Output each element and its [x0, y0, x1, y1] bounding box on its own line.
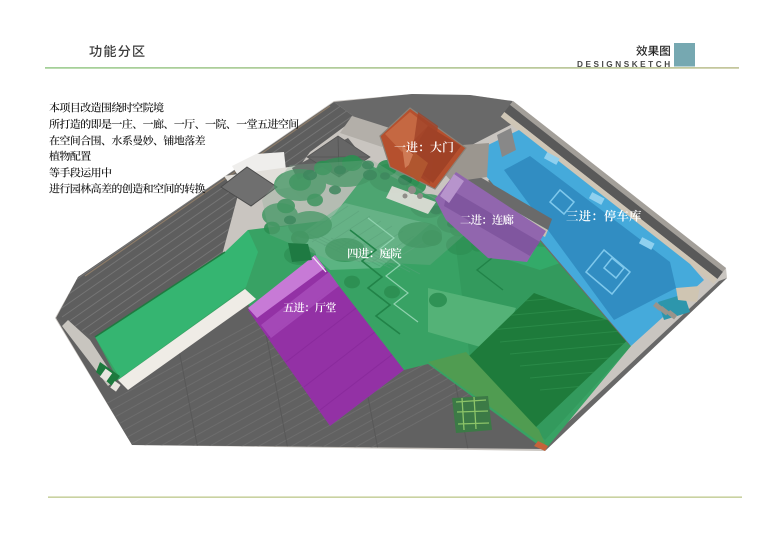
svg-text:DESIGNSKETCH: DESIGNSKETCH	[577, 60, 673, 69]
